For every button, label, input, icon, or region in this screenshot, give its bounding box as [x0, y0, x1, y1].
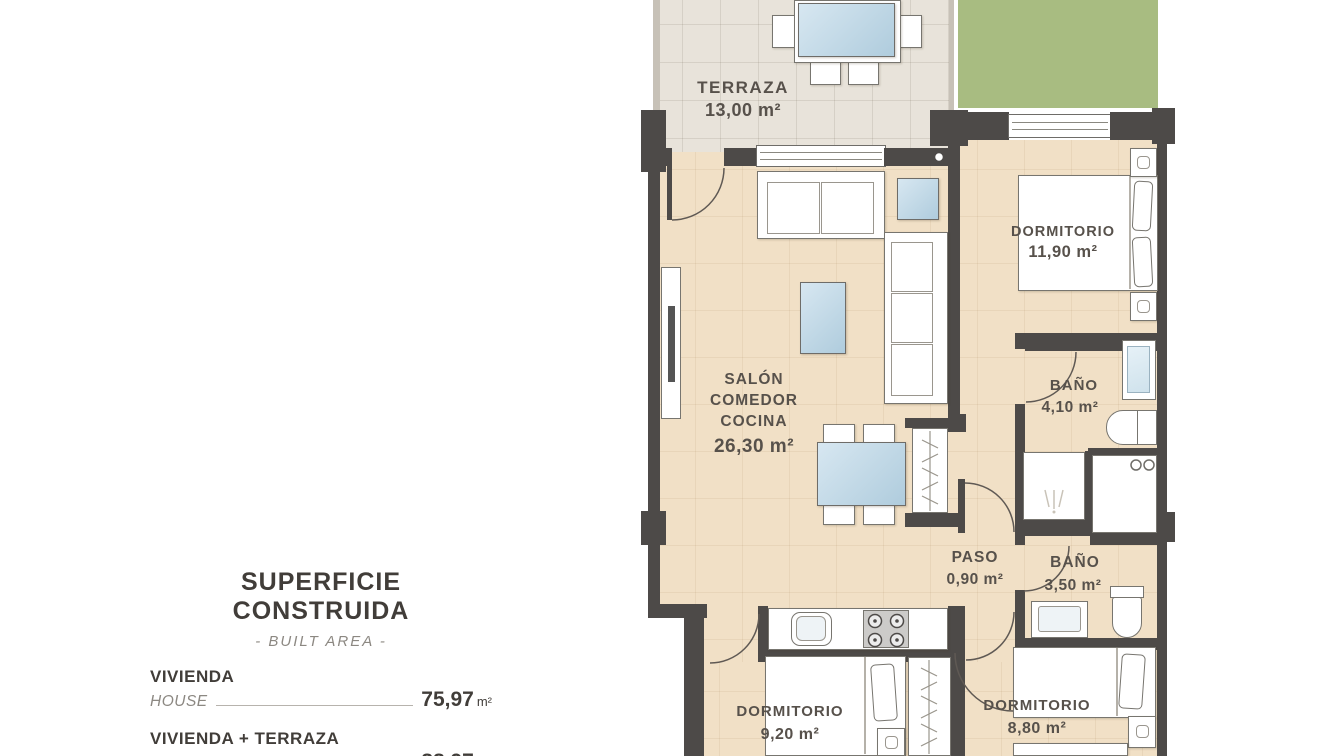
- vanity-faucets: [1131, 460, 1154, 470]
- wall-symbol: [935, 153, 944, 162]
- room-label-bano1: BAÑO: [1038, 377, 1110, 394]
- room-label-salon-2: COMEDOR: [704, 392, 804, 410]
- room-label-dormitorio2: DORMITORIO: [731, 703, 849, 720]
- legend-value: 88,97: [421, 750, 474, 756]
- room-area-dormitorio2: 9,20 m²: [750, 726, 830, 744]
- legend-leader-line: [216, 705, 414, 706]
- legend-row-vivienda-terraza: VIVIENDA + TERRAZA HOUSE + TERRACE 88,97…: [150, 729, 492, 756]
- legend-unit: m²: [477, 694, 492, 709]
- room-area-salon: 26,30 m²: [704, 436, 804, 458]
- room-label-paso: PASO: [944, 549, 1006, 567]
- room-label-salon-3: COCINA: [704, 413, 804, 431]
- legend-value: 75,97: [421, 688, 474, 712]
- room-area-bano2: 3,50 m²: [1036, 577, 1110, 595]
- legend-title: SUPERFICIE CONSTRUIDA: [150, 568, 492, 626]
- stove-burners: [869, 615, 904, 647]
- legend-row-vivienda: VIVIENDA HOUSE 75,97 m²: [150, 667, 492, 712]
- room-area-paso: 0,90 m²: [938, 571, 1012, 589]
- legend-label-es: VIVIENDA: [150, 667, 492, 687]
- shower-drain: [1045, 490, 1063, 514]
- closet-hangers: [921, 431, 938, 754]
- room-area-bano1: 4,10 m²: [1030, 399, 1110, 417]
- legend-label-es: VIVIENDA + TERRAZA: [150, 729, 492, 749]
- legend-subtitle: - BUILT AREA -: [150, 633, 492, 650]
- room-area-terraza: 13,00 m²: [691, 100, 795, 121]
- legend-label-en: HOUSE: [150, 693, 208, 711]
- floor-plan-page: TERRAZA 13,00 m² SALÓN COMEDOR COCINA 26…: [0, 0, 1319, 756]
- room-area-dormitorio3: 8,80 m²: [996, 720, 1078, 738]
- room-label-salon-1: SALÓN: [704, 371, 804, 389]
- room-label-bano2: BAÑO: [1044, 554, 1106, 572]
- room-label-dormitorio3: DORMITORIO: [978, 697, 1096, 714]
- room-label-terraza: TERRAZA: [691, 78, 795, 98]
- room-label-dormitorio1: DORMITORIO: [1000, 224, 1126, 240]
- built-area-legend: SUPERFICIE CONSTRUIDA - BUILT AREA - VIV…: [150, 568, 492, 756]
- room-area-dormitorio1: 11,90 m²: [1000, 243, 1126, 262]
